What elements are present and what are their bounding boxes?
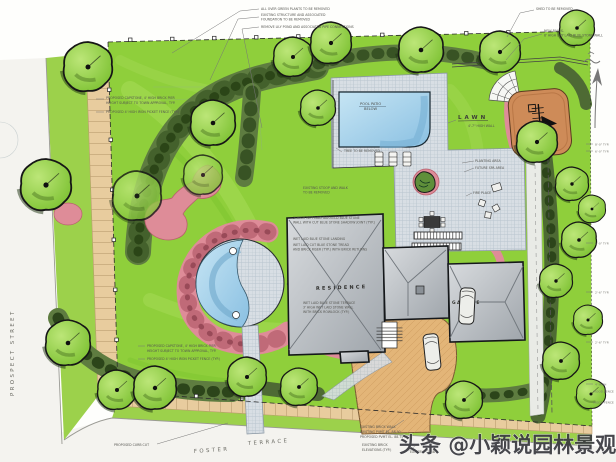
future-spa-label: FUTURE SPA AREA: [475, 166, 505, 170]
note-tread: AND BRICK RISER (TYP.) WITH BRICK RETURN…: [293, 248, 367, 252]
fountain-jet: [230, 248, 237, 255]
tree-icon: [112, 171, 161, 221]
note-house-wall: 3' HIGH WET LAID GARFIELD BLUE STONE: [293, 216, 360, 220]
lounge-chair: [375, 152, 383, 166]
note-brick-pier: PROPOSED CAPSTONE, 4' HIGH BRICK PIER: [106, 96, 175, 100]
tree-icon: [516, 121, 557, 163]
tree-icon: [555, 167, 589, 201]
residence-center: [383, 246, 449, 320]
note-landing: WET LAID BLUE STONE LANDING: [293, 237, 346, 241]
note-brick-pier: HEIGHT SUBJECT TO TOWN APPROVAL, TYP.: [106, 101, 175, 105]
fire-place-label: FIRE PLACE: [473, 191, 491, 195]
tree-icon: [273, 37, 312, 77]
landscape-site-plan: PROSPECT STREET FOSTER TERRACE: [0, 0, 616, 462]
note-house-wall: WALL WITH CUT BLUE STONE SHADOW JOINT (T…: [293, 221, 375, 225]
dim-label: WOOD FENCE: [593, 390, 614, 394]
planting-area-label: PLANTING AREA: [475, 159, 502, 163]
note-brick-elev: ELEVATIONS (TYP.): [362, 448, 391, 452]
lawn-label: LAWN: [458, 115, 488, 121]
dim-label: 6'-0" TYP.: [595, 242, 609, 246]
note-existing-structure: FOUNDATION TO BE REMOVED: [261, 18, 310, 22]
note-green-plants: ALL OVER GREEN PLANTS TO BE REMOVED: [261, 7, 330, 11]
tree-icon: [539, 264, 573, 298]
car-icon: [459, 288, 476, 325]
lounge-chair: [389, 152, 397, 166]
note-stoop: TO BE REMOVED: [302, 191, 330, 195]
note-brick-walk: EXISTING BRICK WALK: [360, 425, 397, 429]
residence-bay: [340, 351, 369, 363]
dim-label: 8'-0" TYP.: [595, 143, 609, 147]
tree-icon: [20, 159, 71, 211]
chimney: [416, 286, 424, 294]
note-picket-fence: PROPOSED 4' HIGH IRON PICKET FENCE (TYP.…: [106, 110, 179, 114]
tree-icon: [133, 366, 176, 410]
specimen-tree-planter: [413, 169, 439, 195]
street-label-prospect: PROSPECT STREET: [10, 309, 16, 396]
tree-icon: [300, 90, 336, 126]
car-icon: [423, 333, 442, 370]
note-tread: WET LAID CUT BLUE STONE TREAD: [293, 243, 349, 247]
tree-icon: [561, 222, 597, 258]
note-brick-elev: EXISTING BRICK: [362, 443, 388, 447]
note-terrace: WET LAID BLUE STONE TERRACE: [303, 301, 355, 305]
note-lily-pond: REMOVE LILY POND AND ASSOCIATED PIPE CON…: [261, 25, 354, 29]
note-stone-wall: 8' HIGH DRY LAID BLUE STONE WALL: [544, 34, 603, 38]
note-brick-pier: HEIGHT SUBJECT TO TOWN APPROVAL, TYP.: [147, 349, 216, 353]
dim-label: 2'-6" TYP.: [595, 341, 609, 345]
note-shed: SHED TO BE REMOVED: [536, 7, 573, 11]
tree-icon: [445, 381, 482, 419]
dim-label: 6'-0" TYP.: [595, 150, 609, 154]
note-wall-height: 4'-7" HIGH WALL: [468, 124, 495, 128]
note-brick-walk: PROPOSED PVMT EL. 88.75: [360, 435, 403, 439]
tree-icon: [183, 155, 222, 195]
tree-icon: [578, 195, 606, 223]
pool-label: POOL PATIO: [360, 102, 381, 106]
note-existing-structure: EXISTING STRUCTURE AND ASSOCIATED: [261, 13, 326, 17]
lounge-chair: [403, 152, 411, 166]
tree-icon: [559, 10, 595, 46]
tree-icon: [479, 31, 520, 73]
tree-icon: [190, 100, 235, 146]
tree-icon: [97, 370, 136, 410]
note-brick-walk: EXISTING PVMT EL. 88.90: [360, 430, 401, 434]
dim-label: WOOD FENCE: [593, 401, 614, 405]
tree-icon: [573, 305, 603, 335]
note-curb-cut: PROPOSED CURB CUT: [114, 443, 149, 447]
tree-icon: [280, 368, 317, 406]
note-tree-removed: TREE TO BE REMOVED: [343, 149, 381, 153]
tree-icon: [227, 357, 266, 397]
dim-label: 4' HIGH: [595, 383, 606, 387]
tree-icon: [63, 42, 112, 92]
note-stoop: EXISTING STOOP AND WALK: [303, 186, 349, 190]
pool-label: BELOW: [364, 107, 377, 111]
note-stone-wall: NEW BALUS.: [544, 29, 564, 33]
note-terrace: WITH BRICK ROWLOCK (TYP.): [303, 310, 349, 314]
tree-icon: [398, 27, 443, 73]
tree-icon: [542, 342, 579, 380]
note-brick-pier: PROPOSED CAPSTONE, 4' HIGH BRICK PIER: [147, 344, 216, 348]
note-terrace: 3' HIGH WET LAID STONE WALL: [303, 306, 354, 310]
dim-label: 2'-6" TYP.: [595, 291, 609, 295]
tree-icon: [45, 320, 90, 366]
fountain-jet: [233, 312, 240, 319]
note-picket-fence: PROPOSED 4' HIGH IRON PICKET FENCE (TYP.…: [147, 357, 220, 361]
watermark: 头条 @小颖说园林景观: [399, 433, 616, 457]
